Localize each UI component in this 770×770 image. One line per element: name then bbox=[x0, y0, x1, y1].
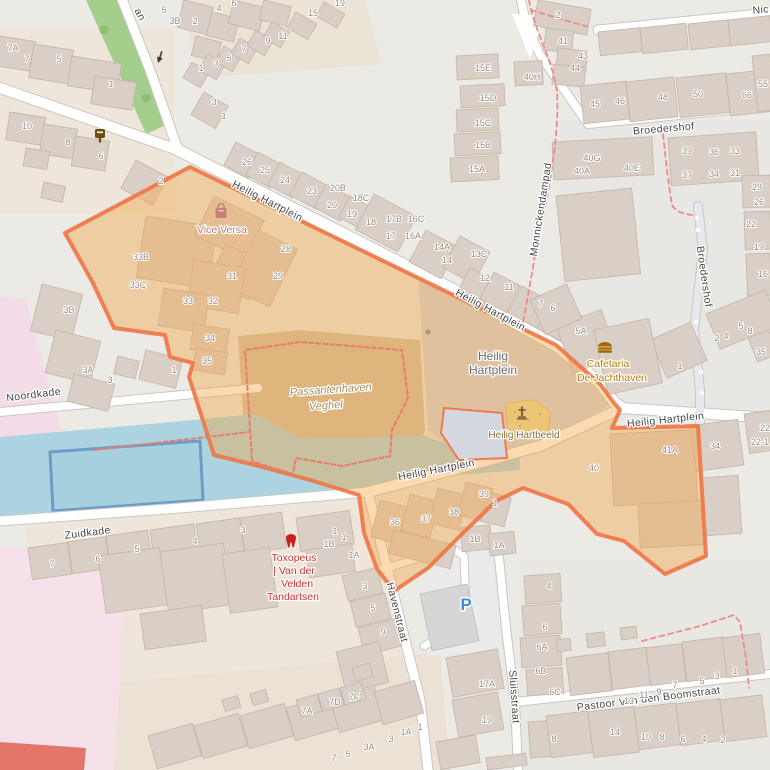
house-number: 16C bbox=[408, 214, 425, 224]
house-number: 2 bbox=[720, 735, 725, 745]
dentist-label: Tandartsen bbox=[267, 591, 319, 603]
house-number: 33C bbox=[130, 280, 147, 290]
house-number: 17A bbox=[479, 679, 495, 689]
house-number: 1A bbox=[493, 540, 504, 550]
house-number: 1A bbox=[348, 550, 359, 560]
house-number: 3 bbox=[240, 525, 245, 535]
house-number: 33 bbox=[730, 146, 740, 156]
house-number: 25 bbox=[260, 165, 270, 175]
house-number: 3 bbox=[714, 671, 719, 681]
house-number: 6 bbox=[98, 151, 103, 161]
house-number: 1 bbox=[341, 532, 346, 542]
house-number: 3 bbox=[213, 58, 218, 68]
house-number: 19 bbox=[754, 242, 764, 252]
house-number: 3 bbox=[211, 97, 216, 107]
house-number: 36 bbox=[709, 147, 719, 157]
house-number: 1 bbox=[171, 365, 176, 375]
dentist-label: Toxopeus bbox=[272, 552, 317, 564]
house-number: 4 bbox=[216, 3, 221, 13]
house-number: 1B bbox=[323, 539, 334, 549]
house-number: 17B bbox=[386, 214, 402, 224]
dentist-label: Velden bbox=[281, 578, 313, 590]
house-number: 19 bbox=[482, 715, 492, 725]
house-number: 45 bbox=[590, 99, 600, 109]
house-number: 28 bbox=[281, 244, 291, 254]
house-number: 9 bbox=[380, 627, 385, 637]
house-number: 7F bbox=[349, 692, 360, 702]
house-number: 34 bbox=[709, 169, 719, 179]
house-number: 11 bbox=[639, 690, 648, 700]
house-number: 1 bbox=[221, 111, 226, 121]
house-number: 1 bbox=[492, 498, 497, 508]
house-number: 20 bbox=[327, 200, 337, 210]
house-number: 7 bbox=[538, 299, 543, 309]
house-number: 5 bbox=[226, 53, 231, 63]
house-number: 2 bbox=[192, 16, 197, 26]
house-number: 5 bbox=[345, 749, 350, 759]
house-number: 6 bbox=[680, 734, 685, 744]
house-number: 6 bbox=[542, 622, 547, 632]
house-number: 18C bbox=[353, 193, 370, 203]
house-number: 9 bbox=[265, 36, 270, 46]
house-number: 14 bbox=[610, 727, 620, 737]
house-number: 7 bbox=[49, 559, 54, 569]
house-number: 8 bbox=[65, 137, 70, 147]
house-number: 40G bbox=[583, 153, 600, 163]
house-number: 5 bbox=[56, 54, 61, 64]
house-number: 29 bbox=[752, 182, 762, 192]
house-number: 15A bbox=[469, 164, 485, 174]
house-number: 23 bbox=[307, 186, 317, 196]
house-number: 43 bbox=[578, 51, 588, 61]
house-number: 8 bbox=[659, 732, 664, 742]
house-number: 6 bbox=[231, 0, 236, 8]
house-number: 35 bbox=[202, 356, 212, 366]
house-number: 7 bbox=[24, 54, 29, 64]
harbour-basin-outline bbox=[50, 441, 203, 511]
house-number: 5 bbox=[699, 676, 704, 686]
house-number: 39 bbox=[479, 489, 489, 499]
house-number: 13 bbox=[624, 696, 634, 706]
house-number: 34 bbox=[710, 441, 720, 451]
house-number: 22 bbox=[760, 423, 770, 433]
house-number: 10 bbox=[641, 732, 651, 742]
house-number: 2 bbox=[714, 333, 719, 343]
house-number: 7A bbox=[7, 43, 18, 53]
house-number: 3B bbox=[169, 16, 180, 26]
house-number: 14A bbox=[434, 242, 450, 252]
house-number: 37 bbox=[421, 514, 431, 524]
shop-label: Vice Versa bbox=[197, 224, 247, 236]
house-number: 33 bbox=[183, 296, 193, 306]
house-number: 12 bbox=[480, 273, 490, 283]
house-number: 50 bbox=[693, 89, 703, 99]
house-number: 35 bbox=[756, 347, 766, 357]
house-number: 4 bbox=[701, 734, 706, 744]
house-number: 2 bbox=[158, 176, 163, 186]
house-number: 5 bbox=[161, 5, 166, 15]
house-number: 31 bbox=[227, 271, 237, 281]
dentist-label: | Van der bbox=[273, 565, 315, 577]
tree-icon bbox=[142, 94, 151, 103]
house-number: 29 bbox=[273, 271, 283, 281]
house-number: 5 bbox=[134, 544, 139, 554]
house-number: 6 bbox=[95, 554, 100, 564]
house-number: 41A bbox=[662, 445, 678, 455]
tree-icon bbox=[100, 26, 109, 35]
house-number: 2 bbox=[555, 10, 560, 20]
house-number: 3B bbox=[63, 305, 74, 315]
street-label: Nic bbox=[752, 3, 769, 16]
house-number: 31 bbox=[730, 168, 740, 178]
house-number: 40E bbox=[624, 163, 640, 173]
house-number: 6 bbox=[550, 303, 555, 313]
house-number: 15E bbox=[475, 63, 491, 73]
house-number: 40H bbox=[524, 72, 541, 82]
osm-map[interactable]: anHeilig HartpleinHeilig HartpleinHeilig… bbox=[0, 0, 770, 770]
house-number: 15B bbox=[475, 140, 491, 150]
house-number: 13C bbox=[471, 249, 488, 259]
house-number: 26 bbox=[242, 157, 252, 167]
house-number: 17 bbox=[386, 231, 396, 241]
house-number: 5A bbox=[575, 326, 586, 336]
house-number: 8 bbox=[747, 326, 752, 336]
house-number: 19 bbox=[347, 209, 357, 219]
house-number: 1 bbox=[332, 526, 337, 536]
house-number: 4 bbox=[192, 536, 197, 546]
parking-label: P bbox=[460, 595, 471, 614]
house-number: 1 bbox=[417, 722, 422, 732]
house-number: 22-1 bbox=[751, 437, 769, 447]
house-number: 4 bbox=[546, 581, 551, 591]
house-number: 3 bbox=[362, 581, 367, 591]
house-number: 55 bbox=[758, 79, 768, 89]
house-number: 38 bbox=[449, 507, 459, 517]
place-label: Heilig bbox=[478, 349, 508, 363]
house-number: 15 bbox=[308, 8, 318, 18]
house-number: 34 bbox=[205, 333, 215, 343]
house-number: 18 bbox=[366, 217, 376, 227]
house-number: 26 bbox=[754, 197, 764, 207]
house-number: 1A bbox=[400, 727, 411, 737]
house-number: 16 bbox=[758, 269, 768, 279]
house-number: 6A bbox=[536, 642, 547, 652]
house-number: 4 bbox=[723, 331, 728, 341]
house-number: 15C bbox=[475, 118, 492, 128]
food-label: De Jachthaven bbox=[577, 372, 647, 384]
house-number: 9 bbox=[656, 687, 661, 697]
house-number: 33B bbox=[133, 252, 149, 262]
house-number: 5 bbox=[370, 603, 375, 613]
house-number: 66 bbox=[742, 90, 752, 100]
house-number: 10 bbox=[22, 121, 32, 131]
house-number: 1 bbox=[677, 361, 682, 371]
osm-map-canvas[interactable]: anHeilig HartpleinHeilig HartpleinHeilig… bbox=[0, 0, 770, 770]
house-number: 8 bbox=[551, 734, 556, 744]
house-number: 46 bbox=[615, 96, 625, 106]
house-number: 41 bbox=[558, 36, 568, 46]
house-number: 6B bbox=[535, 666, 546, 676]
house-number: 1 bbox=[732, 666, 737, 676]
house-number: 40 bbox=[589, 463, 599, 473]
house-number: 32 bbox=[208, 296, 218, 306]
house-number: 7 bbox=[672, 680, 677, 690]
house-number: 6C bbox=[549, 687, 561, 697]
house-number: 11 bbox=[504, 282, 513, 292]
house-number: 1 bbox=[108, 79, 113, 89]
house-number: 11 bbox=[278, 31, 287, 41]
marina-label: Veghel bbox=[308, 399, 343, 413]
house-number: 19 bbox=[335, 0, 345, 8]
house-number: 5 bbox=[738, 321, 743, 331]
house-number: 7D bbox=[329, 697, 341, 707]
house-number: 15D bbox=[480, 93, 497, 103]
house-number: 44 bbox=[570, 63, 580, 73]
house-number: 7A bbox=[301, 706, 312, 716]
place-label: Hartplein bbox=[469, 363, 517, 377]
house-number: 14 bbox=[442, 255, 452, 265]
house-number: 24 bbox=[280, 175, 290, 185]
house-number: 36 bbox=[390, 517, 400, 527]
house-number: 1B bbox=[469, 534, 480, 544]
house-number: 39 bbox=[682, 146, 692, 156]
house-number: 7 bbox=[241, 44, 246, 54]
house-number: 3A bbox=[363, 742, 374, 752]
house-number: 3A bbox=[82, 365, 93, 375]
house-number: 3 bbox=[388, 734, 393, 744]
food-label: Cafetaria bbox=[587, 358, 630, 370]
house-number: 37 bbox=[682, 170, 692, 180]
house-number: 16A bbox=[405, 231, 421, 241]
house-number: 40A bbox=[574, 166, 590, 176]
memorial-label: Heilig Hartbeeld bbox=[488, 430, 559, 441]
house-number: 1 bbox=[198, 63, 203, 73]
house-number: 48 bbox=[658, 92, 668, 102]
house-number: 3 bbox=[107, 375, 112, 385]
house-number: 22 bbox=[746, 219, 756, 229]
house-number: 20B bbox=[330, 183, 346, 193]
house-number: 7 bbox=[331, 753, 336, 763]
